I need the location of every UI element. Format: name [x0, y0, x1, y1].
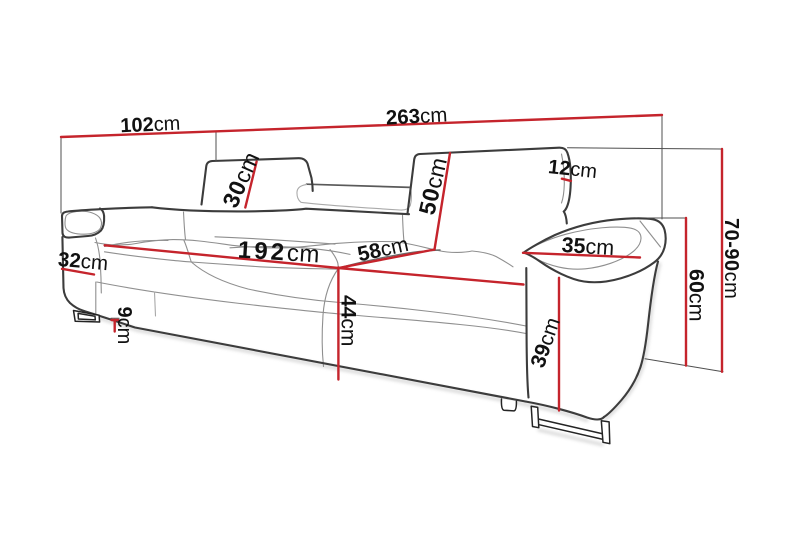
svg-text:60cm: 60cm — [685, 269, 709, 322]
svg-text:70-90cm: 70-90cm — [720, 218, 742, 299]
svg-text:9cm: 9cm — [113, 307, 135, 345]
svg-text:102cm: 102cm — [120, 113, 181, 138]
svg-text:35cm: 35cm — [561, 233, 615, 260]
svg-text:192cm: 192cm — [237, 237, 321, 269]
svg-text:44cm: 44cm — [337, 295, 360, 346]
svg-text:32cm: 32cm — [57, 248, 109, 275]
svg-text:263cm: 263cm — [385, 103, 448, 129]
